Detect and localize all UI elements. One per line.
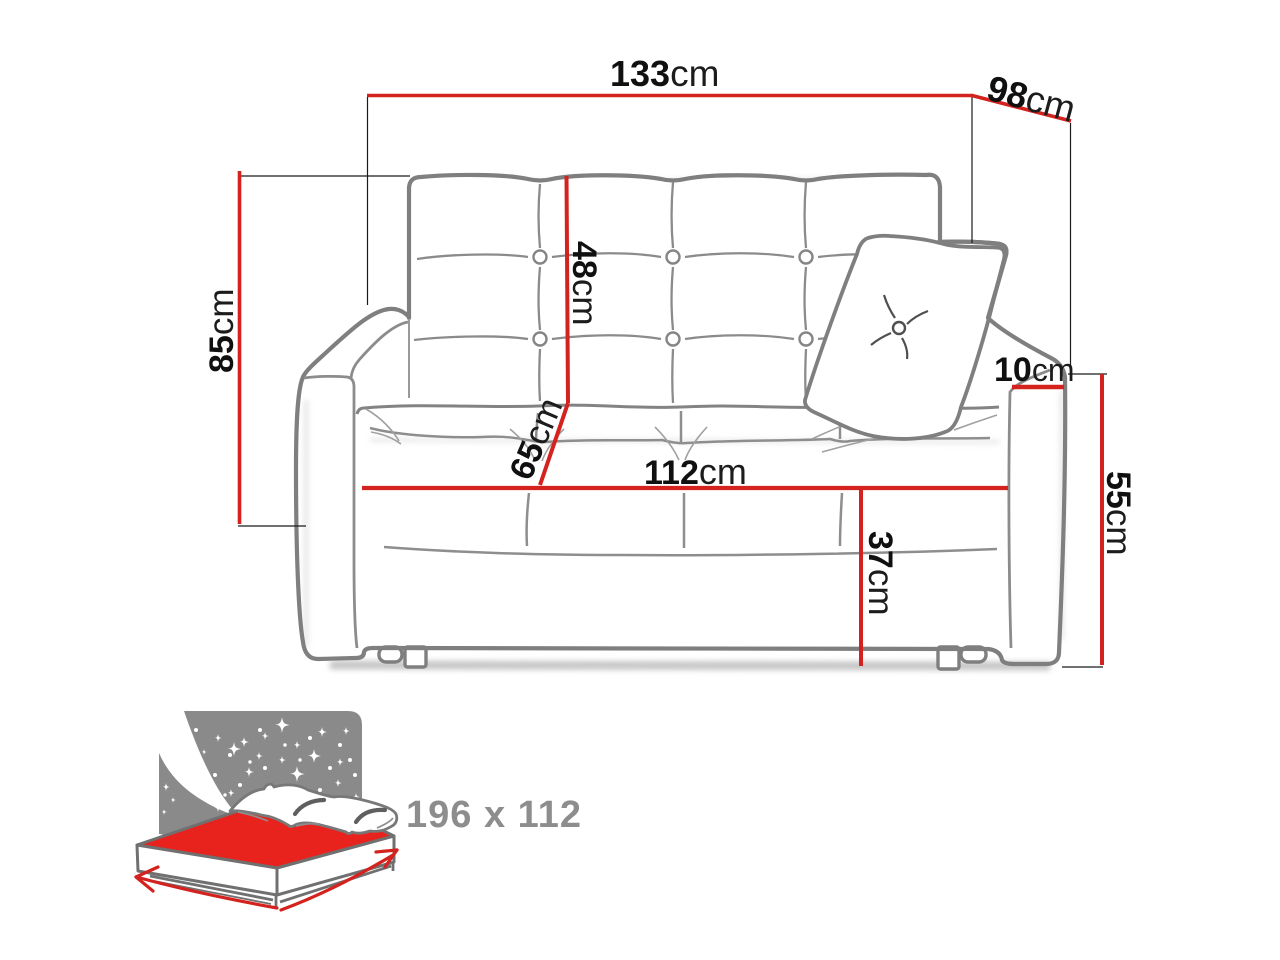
svg-text:112cm: 112cm	[644, 451, 747, 492]
svg-text:48cm: 48cm	[565, 241, 604, 325]
svg-text:10cm: 10cm	[994, 351, 1074, 389]
svg-text:37cm: 37cm	[861, 531, 900, 615]
svg-text:85cm: 85cm	[202, 289, 241, 373]
svg-text:196 x 112: 196 x 112	[406, 794, 582, 836]
svg-text:55cm: 55cm	[1099, 471, 1138, 555]
svg-text:133cm: 133cm	[610, 53, 719, 94]
